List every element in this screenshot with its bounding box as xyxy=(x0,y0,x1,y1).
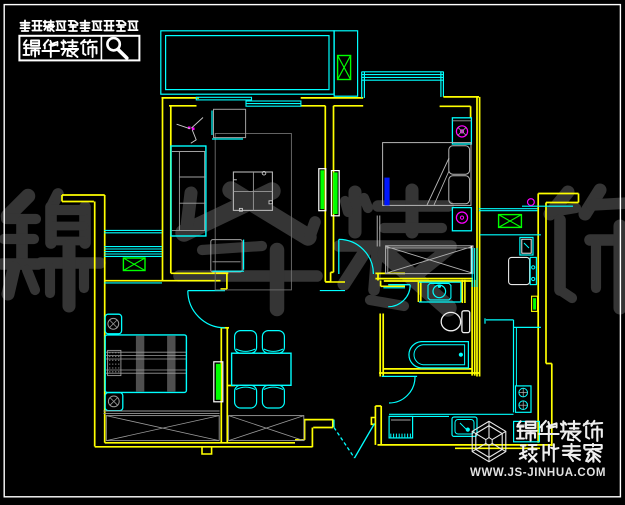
svg-text:WWW.JS-JINHUA.COM: WWW.JS-JINHUA.COM xyxy=(470,467,606,479)
